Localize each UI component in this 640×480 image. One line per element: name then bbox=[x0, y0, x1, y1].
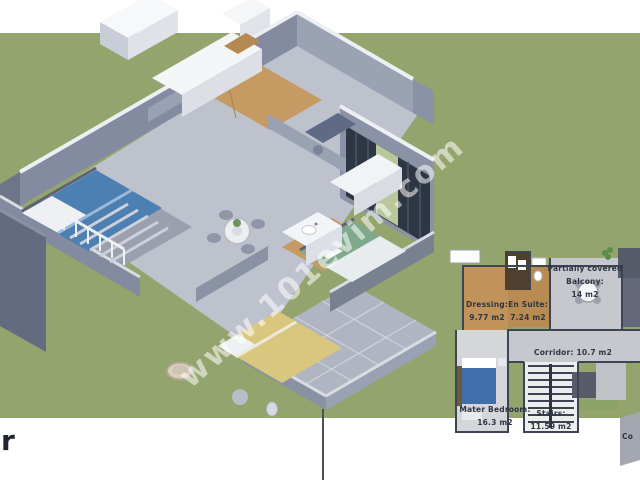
label-clipped: Co bbox=[622, 430, 640, 443]
floorplan-2d: Partially covered Balcony: 14 m2 Dressin… bbox=[448, 246, 640, 480]
corner-letter: r bbox=[1, 424, 15, 457]
divider-line bbox=[322, 409, 324, 480]
label-stairs: Stairs: 11.59 m2 bbox=[521, 407, 581, 433]
label-ensuite: En Suite: 7.24 m2 bbox=[498, 298, 558, 324]
label-corridor: Corridor: 10.7 m2 bbox=[523, 346, 623, 359]
label-balcony: Partially covered Balcony: 14 m2 bbox=[535, 262, 635, 301]
plan-green-strip bbox=[578, 400, 618, 410]
page: { "watermark": "www.101evim.com", "corne… bbox=[0, 0, 640, 480]
